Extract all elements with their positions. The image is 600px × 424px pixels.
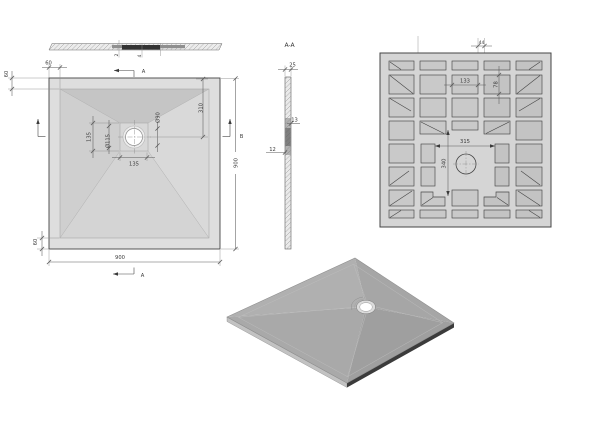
dim-flat-height-bottom: 340 — [442, 159, 448, 169]
iso-3d-view — [227, 258, 454, 388]
section-mark-a-bottom: A — [113, 268, 145, 280]
dim-drain-from-top: 310 — [199, 103, 205, 113]
section-aa-view: A-A 25 13 12 — [266, 42, 300, 249]
svg-text:A: A — [141, 273, 145, 279]
dim-overall-height: 900 — [234, 158, 240, 168]
dim-flat-width-bottom: 315 — [460, 139, 470, 145]
svg-text:B: B — [240, 134, 244, 140]
iso-face-bl — [227, 307, 366, 383]
section-aa-title: A-A — [284, 42, 295, 49]
section-mark-b-left — [36, 119, 45, 137]
dim-margin-left-v: 60 — [4, 71, 10, 78]
dim-drain-diameter: Ø90 — [155, 112, 162, 123]
dim-pocket-width: 133 — [460, 79, 470, 85]
front-elevation-view: 2 4 — [49, 40, 222, 58]
dim-step-left: 2 — [114, 53, 120, 56]
drawing-sheet: 2 4 60 60 60 — [0, 0, 600, 424]
dim-edge-thickness: 25 — [289, 63, 296, 69]
dim-flat-width: 135 — [129, 162, 139, 168]
dim-center-gap: 44 — [479, 40, 485, 46]
dim-overall-width: 900 — [115, 255, 125, 261]
dim-base-thickness: 12 — [269, 147, 276, 153]
dim-flat-height: 135 — [87, 132, 93, 142]
section-mark-b-right: B — [223, 119, 244, 140]
section-mark-a-top: A — [114, 69, 146, 77]
dim-recess-diameter: Ø115 — [105, 134, 112, 148]
dim-pocket-height: 78 — [494, 81, 500, 88]
plan-view: 60 60 60 135 Ø115 Ø90 310 — [4, 61, 244, 280]
dim-mid-thickness: 13 — [291, 118, 298, 124]
dim-step-right: 4 — [137, 54, 143, 57]
technical-drawing: 2 4 60 60 60 — [0, 0, 600, 424]
iso-drain-hole — [360, 303, 373, 312]
bottom-rib-view: 133 78 315 340 44 — [380, 36, 551, 227]
svg-text:A: A — [142, 69, 146, 75]
dim-margin-bottom: 60 — [33, 239, 39, 246]
dim-margin-top-h: 60 — [45, 61, 52, 67]
